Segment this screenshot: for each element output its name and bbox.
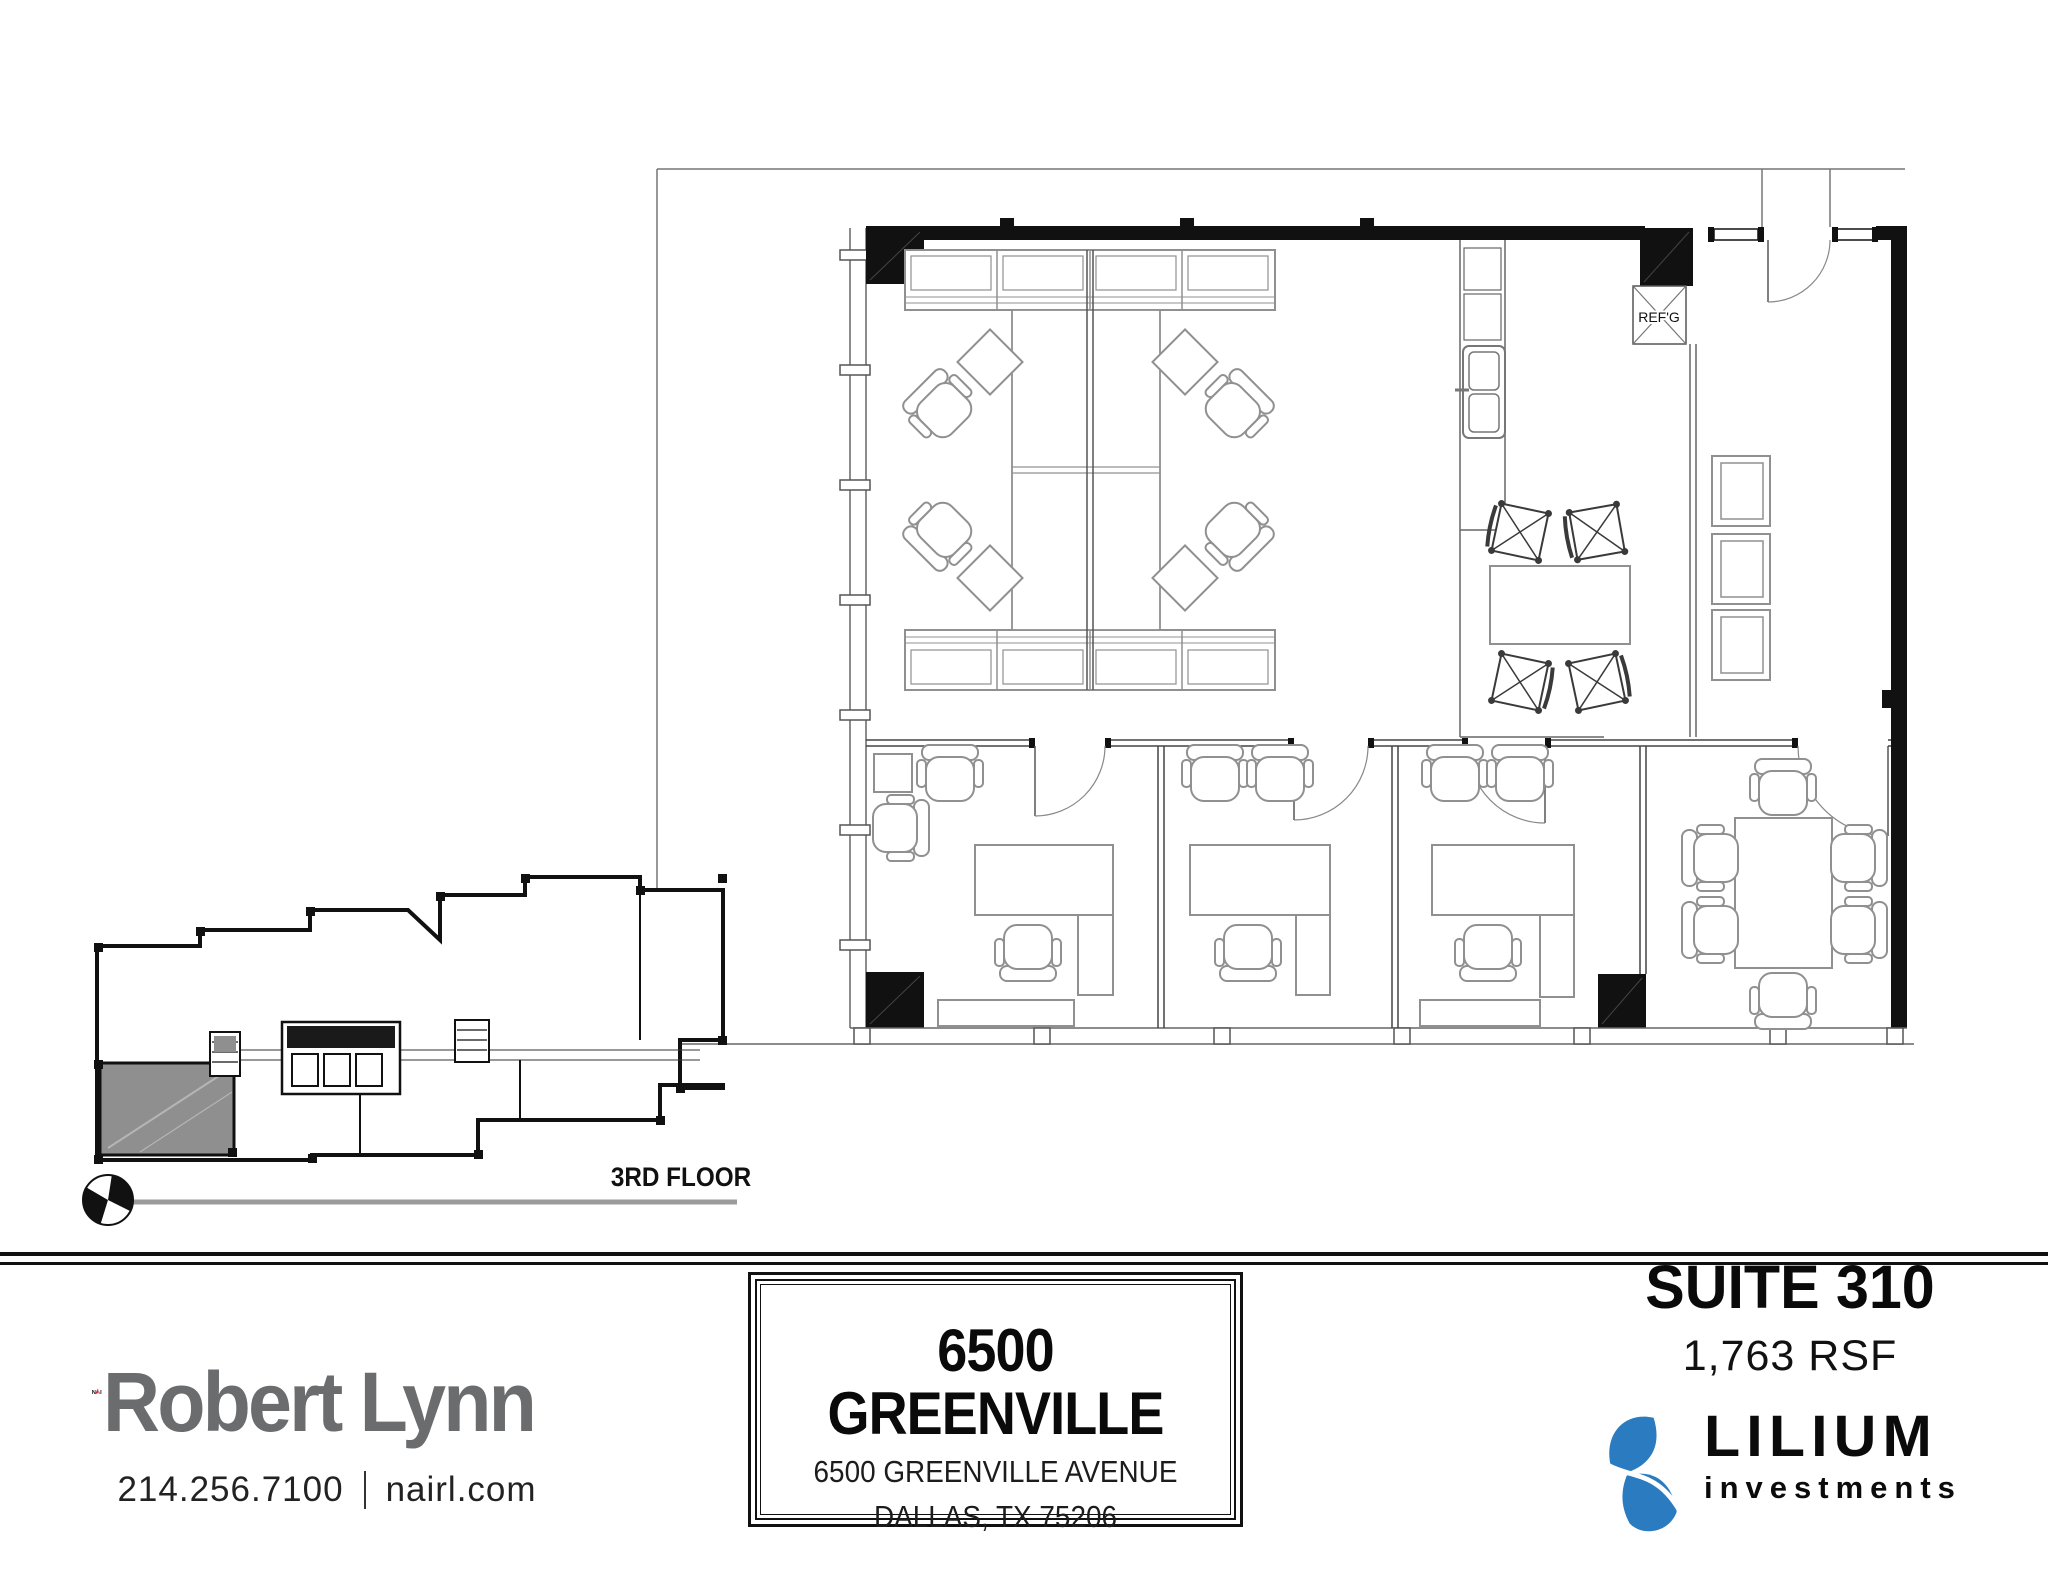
title-box-mid-border: 6500 GREENVILLE 6500 GREENVILLE AVENUE D… xyxy=(755,1279,1236,1520)
investor-logo-block: LILIUM investments xyxy=(1598,1408,2018,1540)
brokerage-phone: 214.256.7100 xyxy=(117,1470,343,1509)
investor-wordmark: LILIUM investments xyxy=(1704,1408,1962,1540)
investor-brand: LILIUM xyxy=(1704,1408,1967,1466)
kitchen-sink xyxy=(1455,346,1505,438)
floor-label: 3RD FLOOR xyxy=(611,1163,752,1192)
lilium-leaf-icon xyxy=(1598,1408,1694,1540)
brokerage-website[interactable]: nairl.com xyxy=(386,1470,537,1509)
window-seats xyxy=(1712,456,1770,680)
workstation-cluster xyxy=(905,250,1275,690)
brokerage-contact: 214.256.7100nairl.com xyxy=(92,1470,562,1510)
key-plan-caption: 3RD FLOOR xyxy=(83,1163,752,1227)
investor-brand-sub: investments xyxy=(1704,1470,1962,1506)
suite-info-block: SUITE 310 1,763 RSF xyxy=(1590,1252,1990,1381)
top-wall xyxy=(866,218,1645,240)
office-front-wall xyxy=(866,738,1891,748)
property-address-line2: DALLAS, TX 75206 xyxy=(784,1499,1206,1535)
property-address-line1: 6500 GREENVILLE AVENUE xyxy=(784,1454,1206,1490)
top-right-entry xyxy=(1708,226,1907,302)
nai-logo-letter-n: N xyxy=(92,1390,96,1396)
flyer-page: REF'G xyxy=(0,0,2048,1583)
property-title-box: 6500 GREENVILLE 6500 GREENVILLE AVENUE D… xyxy=(748,1272,1243,1527)
contact-separator xyxy=(364,1471,366,1509)
refrigerator: REF'G xyxy=(1633,286,1686,344)
nai-logo-letter-i: I xyxy=(100,1390,102,1396)
office-3 xyxy=(1420,745,1574,1026)
north-arrow-icon xyxy=(83,1173,133,1227)
nai-logo-icon: N I xyxy=(92,1338,103,1444)
left-window-wall xyxy=(840,228,870,1028)
property-title: 6500 GREENVILLE xyxy=(784,1319,1206,1445)
bottom-window-wall xyxy=(657,1028,1914,1044)
break-table-group xyxy=(1485,499,1633,715)
refrigerator-label: REF'G xyxy=(1638,309,1680,325)
title-box-inner-border: 6500 GREENVILLE 6500 GREENVILLE AVENUE D… xyxy=(760,1284,1231,1515)
key-plan xyxy=(94,874,727,1164)
nai-logo-letter-a xyxy=(95,1388,100,1394)
office-2 xyxy=(1182,745,1330,995)
entry-door xyxy=(1768,240,1830,302)
floor-plan-drawing: REF'G xyxy=(0,0,2048,1250)
conference-room xyxy=(1682,759,1887,1029)
brokerage-name: Robert Lynn xyxy=(103,1360,534,1444)
brokerage-logo-block: N I Robert Lynn 214.256.7100nairl.com xyxy=(92,1338,562,1510)
suite-area: 1,763 RSF xyxy=(1590,1332,1990,1381)
suite-name: SUITE 310 xyxy=(1596,1252,1984,1322)
